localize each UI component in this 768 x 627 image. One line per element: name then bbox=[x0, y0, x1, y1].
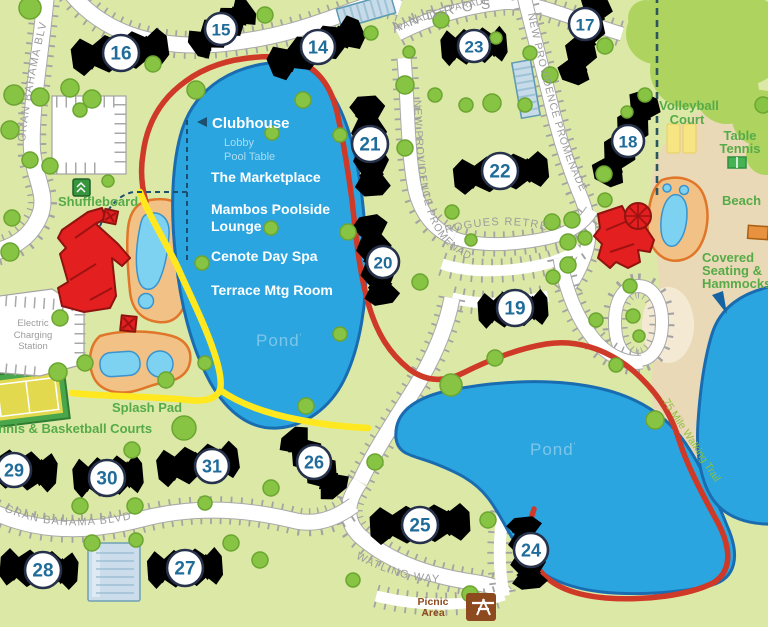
building-number-23: 23 bbox=[465, 38, 484, 57]
tree-icon bbox=[646, 411, 664, 429]
tree-icon bbox=[596, 166, 612, 182]
tree-icon bbox=[333, 327, 347, 341]
tree-icon bbox=[22, 152, 38, 168]
tree-icon bbox=[333, 128, 347, 142]
tree-icon bbox=[1, 243, 19, 261]
tree-icon bbox=[198, 496, 212, 510]
pond-2-label: Pond' bbox=[530, 440, 576, 459]
pond-1-label: Pond' bbox=[256, 331, 302, 350]
tree-icon bbox=[623, 279, 637, 293]
tree-icon bbox=[84, 535, 100, 551]
beach-dock bbox=[748, 225, 768, 239]
building-number-15: 15 bbox=[212, 21, 231, 40]
label-beach: Beach bbox=[722, 193, 761, 208]
tree-icon bbox=[578, 231, 592, 245]
building-number-19: 19 bbox=[504, 299, 525, 320]
tree-icon bbox=[597, 38, 613, 54]
building-number-28: 28 bbox=[32, 561, 53, 582]
building-number-21: 21 bbox=[359, 135, 381, 156]
tree-icon bbox=[61, 79, 79, 97]
label-electric-1: Electric bbox=[17, 318, 48, 329]
callout-clubhouse: Clubhouse bbox=[212, 115, 290, 132]
building-number-29: 29 bbox=[4, 461, 24, 481]
tree-icon bbox=[49, 363, 67, 381]
tree-icon bbox=[412, 274, 428, 290]
tree-icon bbox=[621, 106, 633, 118]
tree-icon bbox=[638, 88, 652, 102]
tree-icon bbox=[364, 26, 378, 40]
picnic-area-icon bbox=[466, 593, 496, 621]
building-number-24: 24 bbox=[521, 541, 541, 561]
tree-icon bbox=[124, 442, 140, 458]
label-picnic-2: Area bbox=[421, 607, 445, 619]
tree-icon bbox=[77, 355, 93, 371]
tree-icon bbox=[129, 533, 143, 547]
tree-icon bbox=[346, 573, 360, 587]
tree-icon bbox=[483, 94, 501, 112]
tree-icon bbox=[4, 85, 24, 105]
building-number-30: 30 bbox=[96, 469, 117, 490]
tree-icon bbox=[755, 97, 768, 113]
building-number-18: 18 bbox=[619, 133, 638, 152]
tree-icon bbox=[264, 221, 278, 235]
tree-icon bbox=[626, 309, 640, 323]
tree-icon bbox=[295, 92, 311, 108]
tree-icon bbox=[518, 98, 532, 112]
tree-icon bbox=[73, 103, 87, 117]
callout-mambos-1: Mambos Poolside bbox=[211, 201, 330, 217]
label-shuffleboard: Shuffleboard bbox=[58, 194, 138, 209]
tree-icon bbox=[102, 175, 114, 187]
resort-map: 141516171819202122232425262728293031 AND… bbox=[0, 0, 768, 627]
tree-icon bbox=[158, 372, 174, 388]
label-splash-pad: Splash Pad bbox=[112, 400, 182, 415]
tree-icon bbox=[609, 358, 623, 372]
tree-icon bbox=[72, 498, 88, 514]
building-number-14: 14 bbox=[308, 38, 328, 58]
tree-icon bbox=[19, 0, 41, 19]
table-tennis-icon bbox=[728, 157, 746, 168]
tree-icon bbox=[564, 212, 580, 228]
tree-icon bbox=[440, 374, 462, 396]
tree-icon bbox=[340, 224, 356, 240]
building-number-16: 16 bbox=[110, 44, 131, 65]
label-volleyball-2: Court bbox=[670, 112, 705, 127]
tree-icon bbox=[487, 350, 503, 366]
tree-icon bbox=[480, 512, 496, 528]
callout-terrace: Terrace Mtg Room bbox=[211, 282, 333, 298]
tree-icon bbox=[490, 32, 502, 44]
callout-lobby: Lobby bbox=[224, 137, 254, 149]
tree-icon bbox=[198, 356, 212, 370]
tree-icon bbox=[546, 270, 560, 284]
callout-marketplace: The Marketplace bbox=[211, 169, 321, 185]
tree-icon bbox=[298, 398, 314, 414]
tree-icon bbox=[257, 7, 273, 23]
tree-icon bbox=[396, 76, 414, 94]
tree-icon bbox=[465, 234, 477, 246]
tree-icon bbox=[52, 310, 68, 326]
tree-icon bbox=[42, 158, 58, 174]
tree-icon bbox=[223, 535, 239, 551]
callout-cenote: Cenote Day Spa bbox=[211, 248, 318, 264]
building-number-22: 22 bbox=[489, 162, 510, 183]
tree-icon bbox=[560, 257, 576, 273]
tree-icon bbox=[252, 552, 268, 568]
tree-icon bbox=[589, 313, 603, 327]
building-number-31: 31 bbox=[202, 457, 222, 477]
building-number-20: 20 bbox=[374, 254, 393, 273]
tree-icon bbox=[403, 46, 415, 58]
callout-pool-table: Pool Table bbox=[224, 151, 275, 163]
tree-icon bbox=[397, 140, 413, 156]
label-volleyball-1: Volleyball bbox=[659, 98, 719, 113]
tree-icon bbox=[172, 416, 196, 440]
covered-structure-bottom bbox=[88, 543, 140, 601]
tree-icon bbox=[4, 210, 20, 226]
tree-icon bbox=[195, 256, 209, 270]
tree-icon bbox=[598, 193, 612, 207]
tree-icon bbox=[1, 121, 19, 139]
tree-icon bbox=[459, 98, 473, 112]
tree-icon bbox=[367, 454, 383, 470]
building-number-25: 25 bbox=[409, 516, 431, 537]
tree-icon bbox=[560, 234, 576, 250]
building-number-17: 17 bbox=[576, 16, 595, 35]
tree-icon bbox=[428, 88, 442, 102]
label-electric-3: Station bbox=[18, 341, 48, 352]
tree-icon bbox=[145, 56, 161, 72]
label-tennis-basketball: Tennis & Basketball Courts bbox=[0, 421, 152, 436]
label-electric-2: Charging bbox=[14, 330, 53, 341]
label-covered-3: Hammocks bbox=[702, 276, 768, 291]
callout-mambos-2: Lounge bbox=[211, 218, 262, 234]
label-table-tennis-2: Tennis bbox=[720, 141, 761, 156]
tree-icon bbox=[445, 205, 459, 219]
tree-icon bbox=[263, 480, 279, 496]
building-number-27: 27 bbox=[174, 559, 195, 580]
tree-icon bbox=[633, 330, 645, 342]
building-number-26: 26 bbox=[304, 453, 324, 473]
tree-icon bbox=[187, 81, 205, 99]
